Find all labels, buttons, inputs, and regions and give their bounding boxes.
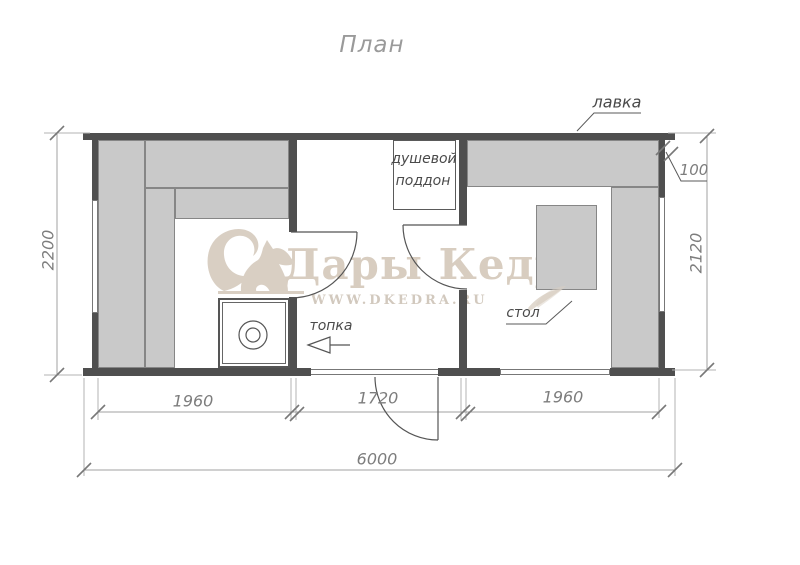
wall-partition-left-lower	[289, 297, 297, 368]
wall-bottom-mid-segment	[438, 368, 500, 376]
dim-wall-offset: 100	[680, 161, 709, 179]
furnace-arrow-icon	[308, 337, 350, 353]
wall-partition-right-upper	[459, 140, 467, 225]
window-bottom-wall	[500, 369, 610, 375]
wall-bottom-left-segment	[83, 368, 311, 376]
stove-inner-frame	[222, 302, 286, 364]
shower-tray-label-line2: поддон	[396, 173, 451, 189]
sauna-bench-left-strip	[98, 140, 145, 368]
wall-right-lower	[659, 312, 665, 376]
dim-middle-room-width: 1720	[358, 389, 399, 408]
shower-tray-label-line1: душевой	[391, 151, 456, 167]
entrance-threshold	[311, 369, 438, 375]
wall-top	[83, 133, 675, 140]
bench-label: лавка	[593, 93, 642, 112]
floor-plan-canvas: Дары Кедра WWW.DKEDRA.RU	[0, 0, 800, 565]
wall-right-upper	[659, 138, 665, 197]
furnace-label: топка	[310, 318, 353, 334]
rest-room-top-bench	[467, 140, 659, 187]
dim-left-room-width: 1960	[173, 392, 214, 411]
entrance-door-arc	[375, 377, 438, 440]
wall-bottom-right-segment	[610, 368, 675, 376]
wall-partition-right-lower	[459, 290, 467, 368]
page-title: План	[339, 32, 404, 58]
table-label: стол	[506, 305, 539, 321]
rest-room-table	[536, 205, 597, 290]
sauna-bench-mid-strip	[145, 188, 175, 368]
wall-partition-left-upper	[289, 140, 297, 232]
stove	[218, 298, 290, 368]
dim-right-room-width: 1960	[543, 388, 584, 407]
sauna-bench-low-tier	[175, 188, 289, 219]
sauna-bench-top-tier	[145, 140, 289, 188]
dim-right-height: 2120	[687, 233, 706, 274]
dim-total-width: 6000	[357, 450, 398, 469]
rest-room-side-bench	[611, 187, 659, 368]
dim-left-height: 2200	[39, 230, 58, 271]
window-right-wall	[659, 197, 665, 312]
